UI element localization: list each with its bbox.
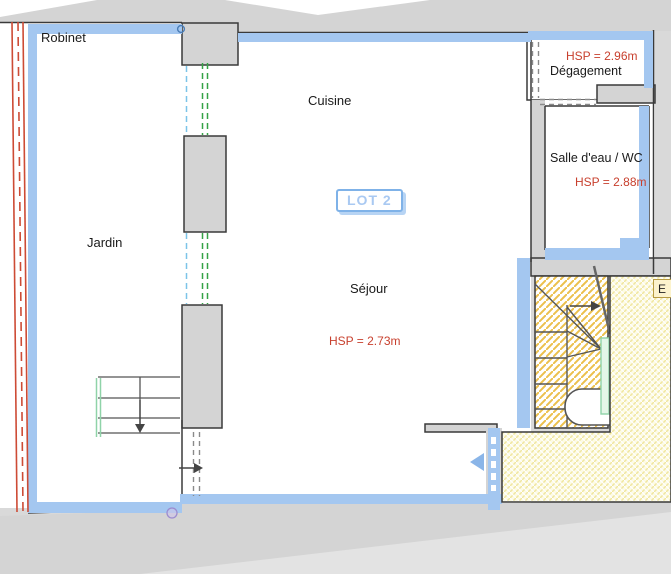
floor-plan-drawing: [0, 0, 671, 574]
label-sejour: Séjour: [350, 281, 388, 296]
hsp-sejour: HSP = 2.73m: [329, 334, 400, 348]
label-jardin: Jardin: [87, 235, 122, 250]
label-degagement: Dégagement: [550, 64, 622, 78]
escalier-tag-text: E: [658, 282, 666, 296]
utility-symbol: [167, 508, 177, 518]
label-cuisine: Cuisine: [308, 93, 351, 108]
escalier-tag: E: [653, 279, 671, 298]
label-robinet: Robinet: [41, 30, 86, 45]
lot-badge: LOT 2: [336, 189, 403, 212]
hsp-salle-eau: HSP = 2.88m: [575, 175, 646, 189]
label-salle-eau: Salle d'eau / WC: [550, 151, 643, 165]
floor-plan-canvas: Robinet Cuisine Jardin Séjour HSP = 2.73…: [0, 0, 671, 574]
hsp-degagement: HSP = 2.96m: [566, 49, 637, 63]
